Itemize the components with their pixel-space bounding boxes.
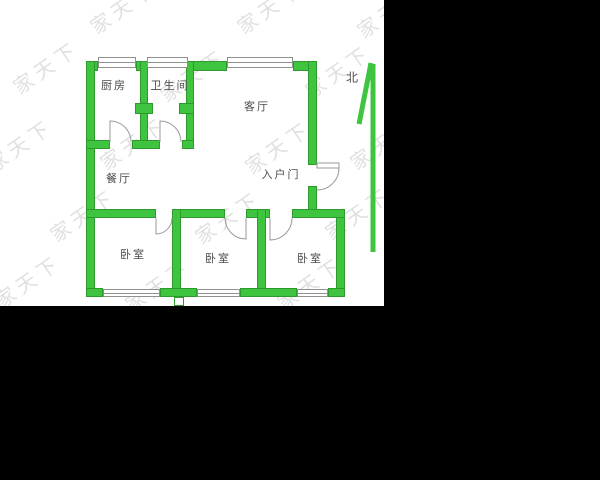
floorplan-image: 家天下 家天下 家天下 家天下 家天下 家天下 家天下 家天下 家天下 家天下 … <box>0 0 600 480</box>
kitchen-door-arc <box>110 121 131 142</box>
room-label-bedroom-west: 卧室 <box>120 246 146 262</box>
bathroom-door-arc <box>160 121 181 142</box>
entrance-door-arc <box>317 168 339 190</box>
entrance-door-leaf <box>317 163 339 168</box>
bedroom-middle-door-arc <box>225 218 246 239</box>
bedroom-east-door-arc <box>270 218 292 240</box>
room-label-bedroom-middle: 卧室 <box>205 250 231 266</box>
room-label-living: 客厅 <box>244 98 270 114</box>
room-label-dining: 餐厅 <box>106 170 132 186</box>
north-arrow-icon <box>359 63 373 252</box>
room-label-bedroom-east: 卧室 <box>297 250 323 266</box>
bedroom-west-door-arc <box>156 218 172 234</box>
room-label-kitchen: 厨房 <box>101 77 127 93</box>
room-label-entrance: 入户门 <box>262 166 301 182</box>
bottom-black-mask <box>0 306 600 480</box>
room-label-bathroom: 卫生间 <box>151 77 190 93</box>
north-label: 北 <box>346 69 358 86</box>
